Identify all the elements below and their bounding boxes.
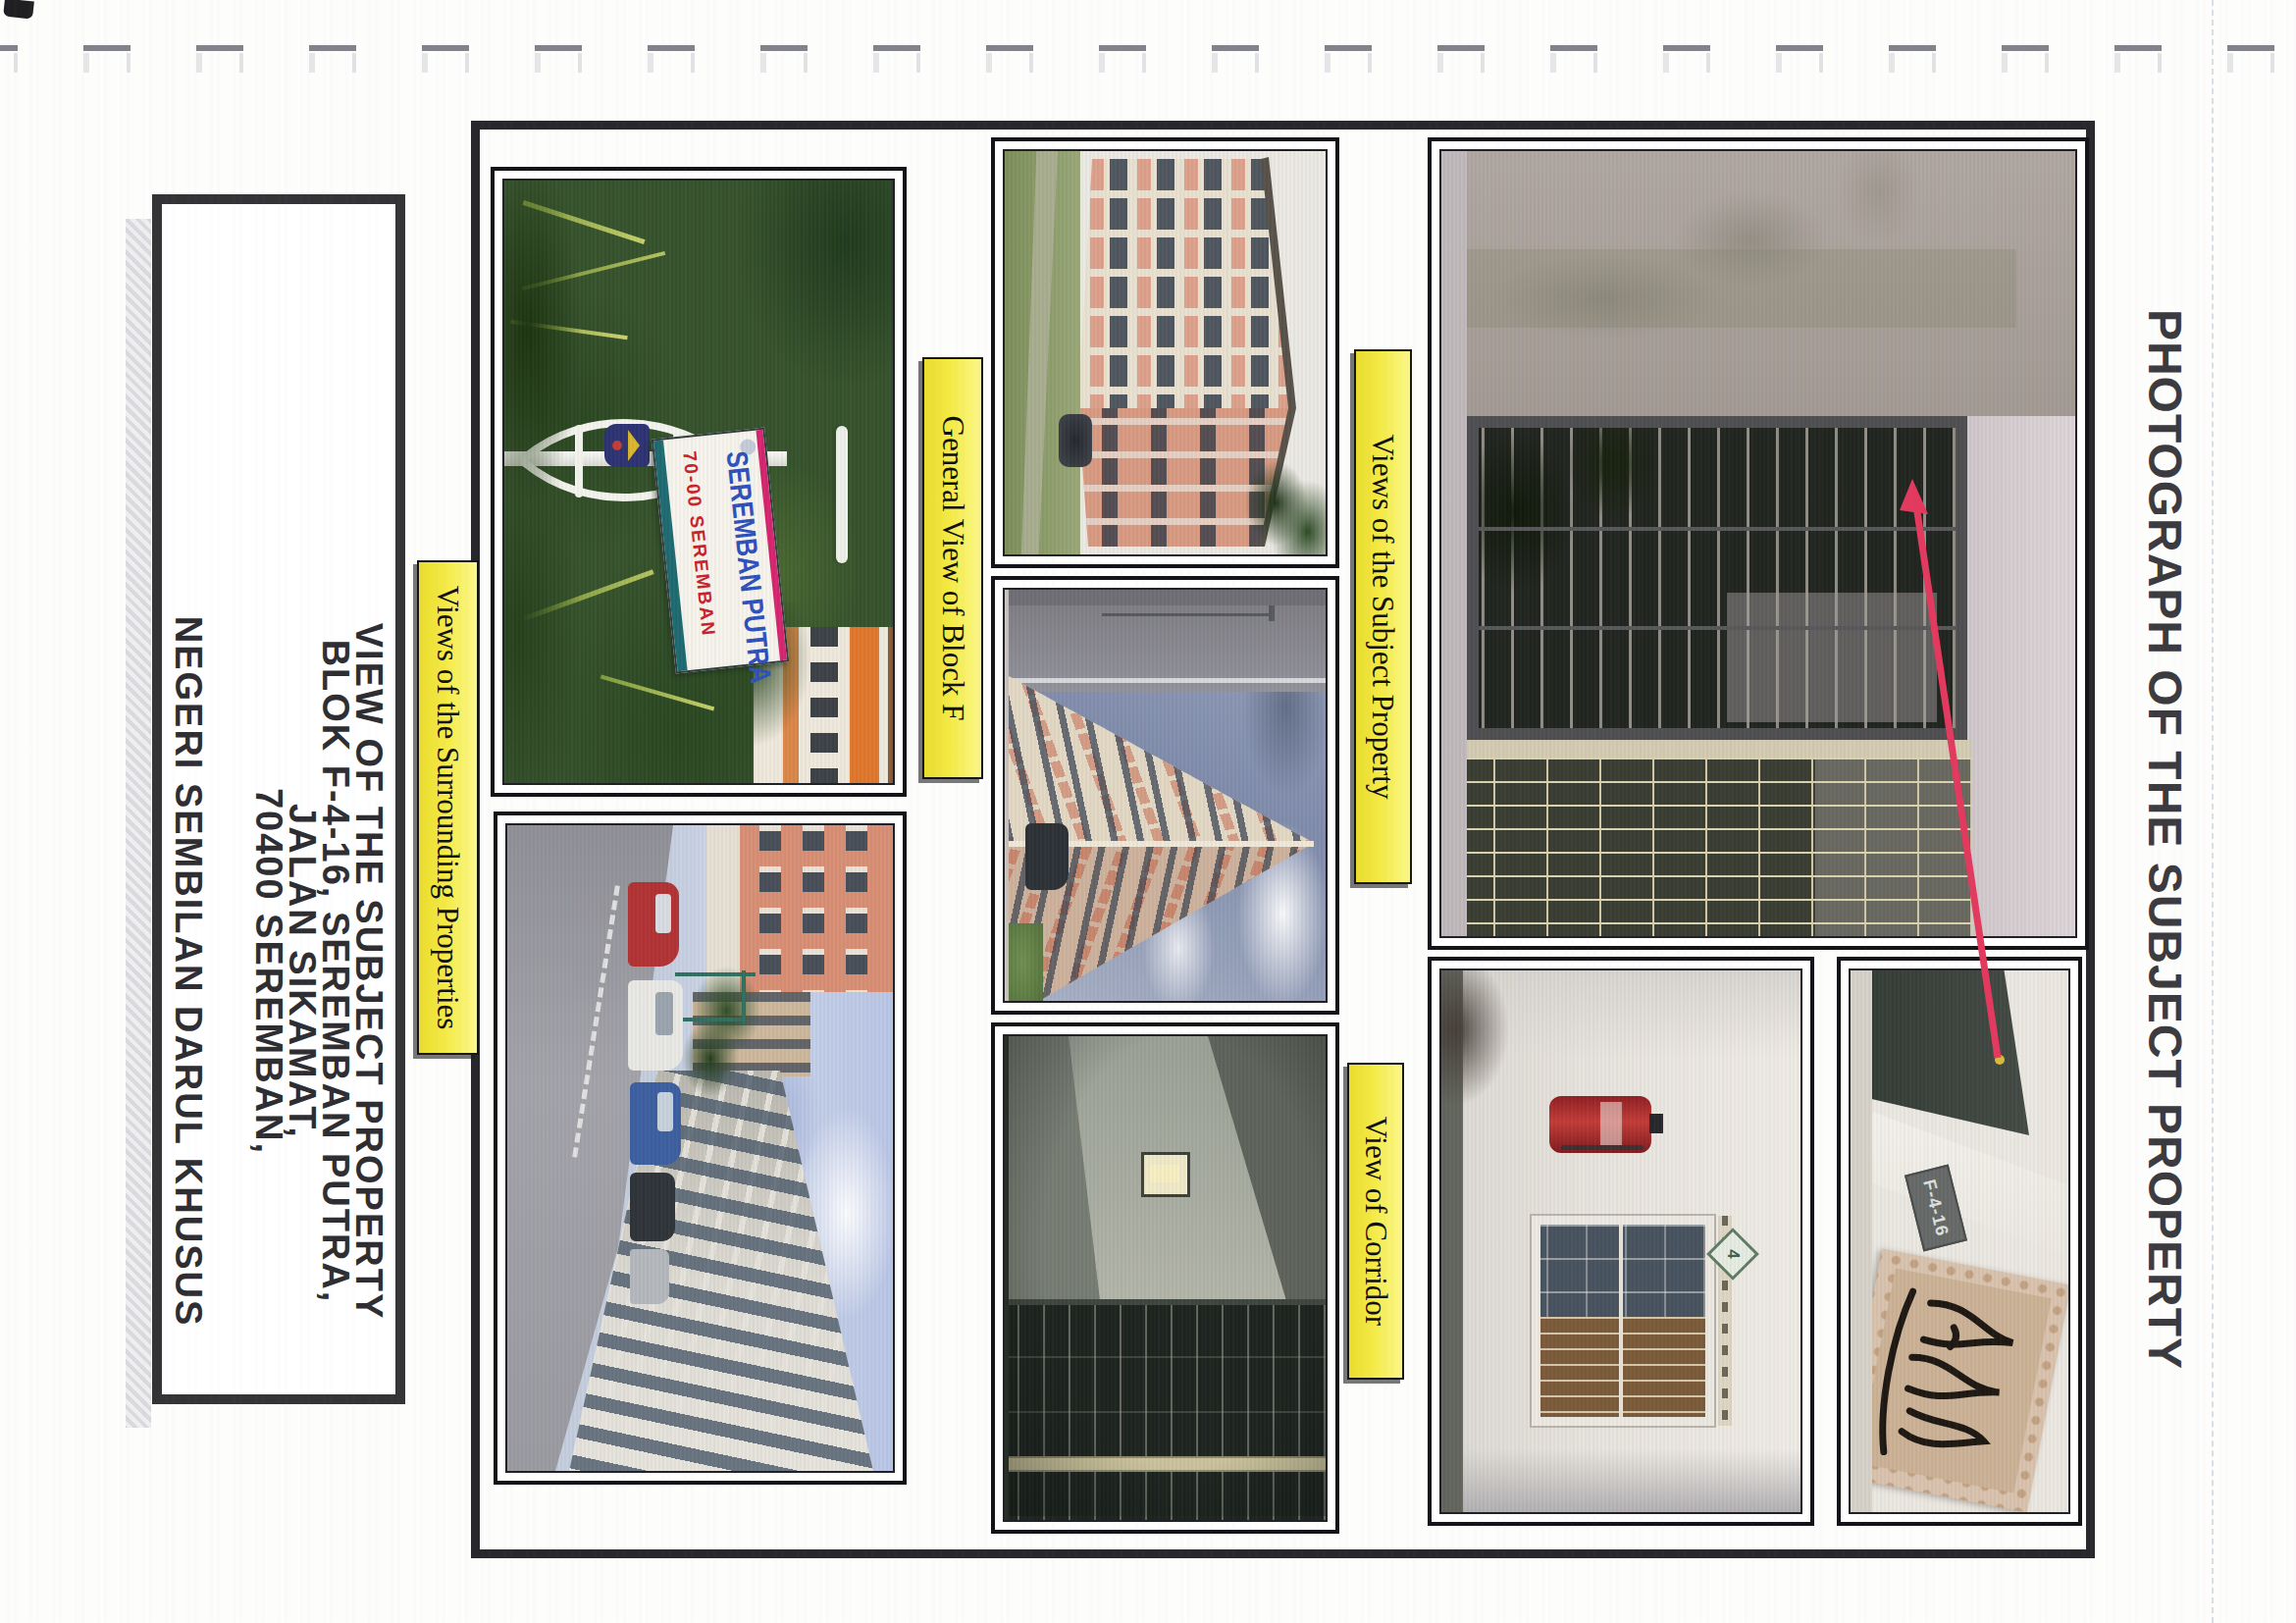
parked-cars-row [628, 882, 679, 967]
label-view-of-corridor-text: View of Corridor [1358, 1117, 1393, 1326]
address-line-1: VIEW OF THE SUBJECT PROPERTY [352, 530, 386, 1413]
roadside [1009, 590, 1326, 692]
binder-tear-marks-shadow [0, 53, 2296, 73]
corridor-extinguisher-image: 4 [1439, 969, 1802, 1514]
page-curl-shadow [126, 219, 151, 1428]
photo-signboard: SEREMBAN PUTRA 70-00 SEREMBAN [491, 167, 907, 797]
corridor-window [1532, 1216, 1714, 1426]
fire-extinguisher [1549, 1096, 1651, 1153]
calligraphy-frame [1849, 1248, 2070, 1512]
state-crest [604, 424, 650, 467]
scanned-report-page: PHOTOGRAPH OF THE SUBJECT PROPERTY [0, 0, 2296, 1623]
sign-subtitle-text: 70-00 SEREMBAN [678, 450, 719, 639]
torn-corner-mark [3, 0, 34, 20]
photo-subject-entrance [1428, 137, 2089, 950]
unit-plaque-image: F-4-16 [1849, 969, 2070, 1514]
page-fold-line [2212, 0, 2214, 1623]
subject-entrance-image [1439, 149, 2077, 938]
unit-number-text: F-4-16 [1919, 1178, 1954, 1238]
address-line-3: JALAN SIKAMAT, [286, 530, 319, 1413]
address-box: VIEW OF THE SUBJECT PROPERTY BLOK F-4-16… [152, 194, 405, 1404]
block-f-image [1003, 149, 1328, 556]
parked-motorcycle [1059, 414, 1092, 467]
seremban-putra-signboard: SEREMBAN PUTRA 70-00 SEREMBAN [652, 428, 789, 674]
photo-street-view [494, 811, 907, 1485]
entrance-grille-door [1467, 416, 1967, 740]
address-line-2: BLOK F-4-16, SEREMBAN PUTRA, [319, 530, 352, 1413]
address-line-4: 70400 SEREMBAN, [252, 530, 286, 1413]
grid-fence [1462, 758, 1972, 936]
street-view-image [505, 823, 895, 1473]
address-text: VIEW OF THE SUBJECT PROPERTY BLOK F-4-16… [172, 530, 386, 1413]
photo-block-corner [991, 576, 1339, 1015]
label-view-of-corridor: View of Corridor [1347, 1063, 1404, 1380]
block-corner-image [1003, 588, 1328, 1003]
photo-unit-plaque: F-4-16 [1837, 957, 2082, 1526]
signboard-image: SEREMBAN PUTRA 70-00 SEREMBAN [502, 179, 895, 785]
label-surrounding-properties: Views of the Surrounding Properties [417, 560, 479, 1055]
page-title: PHOTOGRAPH OF THE SUBJECT PROPERTY [2138, 121, 2192, 1558]
label-subject-property: Views of the Subject Property [1354, 349, 1412, 884]
address-line-5: NEGERI SEMBILAN DARUL KHUSUS [172, 530, 205, 1413]
photo-dark-corridor [991, 1022, 1339, 1534]
label-general-view-block-f: General View of Block F [922, 357, 983, 779]
label-general-view-block-f-text: General View of Block F [935, 416, 970, 721]
floor-number-text: 4 [1717, 1238, 1748, 1270]
dark-corridor-image [1003, 1034, 1328, 1522]
street-lamp [1102, 613, 1271, 616]
label-surrounding-properties-text: Views of the Surrounding Properties [431, 586, 466, 1030]
label-subject-property-text: Views of the Subject Property [1366, 435, 1401, 800]
parked-car [1025, 823, 1069, 890]
binder-tear-marks [0, 45, 2296, 51]
photo-corridor-extinguisher: 4 [1428, 957, 1814, 1526]
photo-block-f [991, 137, 1339, 568]
portrait-sheet: PHOTOGRAPH OF THE SUBJECT PROPERTY [0, 0, 2296, 1623]
